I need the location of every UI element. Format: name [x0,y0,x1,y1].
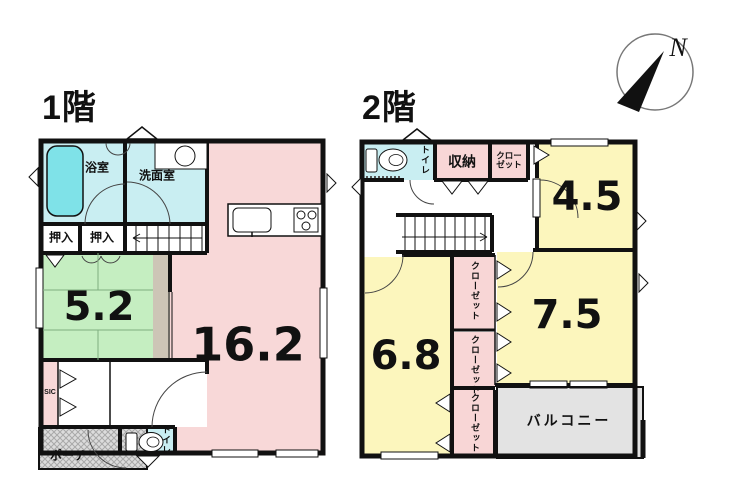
bath-label: 浴室 [85,161,109,174]
floor2-title: 2階 [362,80,417,129]
storage-label: 収納 [448,154,476,169]
porch-label: ポーチ [50,449,86,462]
window-marker-icon [352,178,361,196]
tatami-size-label: 5.2 [64,285,135,329]
window-marker-icon [637,212,646,230]
toilet1-label: トイレ [160,425,170,455]
oshiire2-label: 押入 [90,231,114,244]
oshiire1-label: 押入 [49,231,73,244]
compass-north-label: N [668,33,688,62]
closet-c-label: クローゼット [469,393,479,453]
roof-vent-icon [127,127,157,139]
closet-b-label: クローゼット [469,335,479,381]
closet-a-label: クローゼット [469,261,479,321]
floor1-title: 1階 [42,80,97,129]
room75-size-label: 7.5 [532,293,603,337]
entrance-hall [43,360,207,427]
room-washroom [125,143,207,224]
closet-top-label: クロー ゼット [496,152,522,171]
ldk-size-label: 16.2 [191,320,305,371]
window-marker-icon [29,168,38,186]
room68-size-label: 6.8 [371,334,442,378]
room45-size-label: 4.5 [552,175,623,219]
compass-icon: N [617,33,693,112]
balcony-label: バルコニー [527,413,612,428]
window-marker-icon [327,174,336,192]
closet-top-line2: ゼット [496,160,522,170]
toilet2-label: トイレ [419,145,429,175]
room-bath [43,143,125,224]
washroom-label: 洗面室 [139,169,175,182]
sic-label: SIC [44,389,56,397]
roof-vent-icon [403,129,431,140]
tatami-edge-strip [153,253,170,360]
window-marker-icon [639,274,648,292]
stairs-area-1f [125,224,207,253]
floor-plan-canvas: 1階 2階 [0,0,740,492]
